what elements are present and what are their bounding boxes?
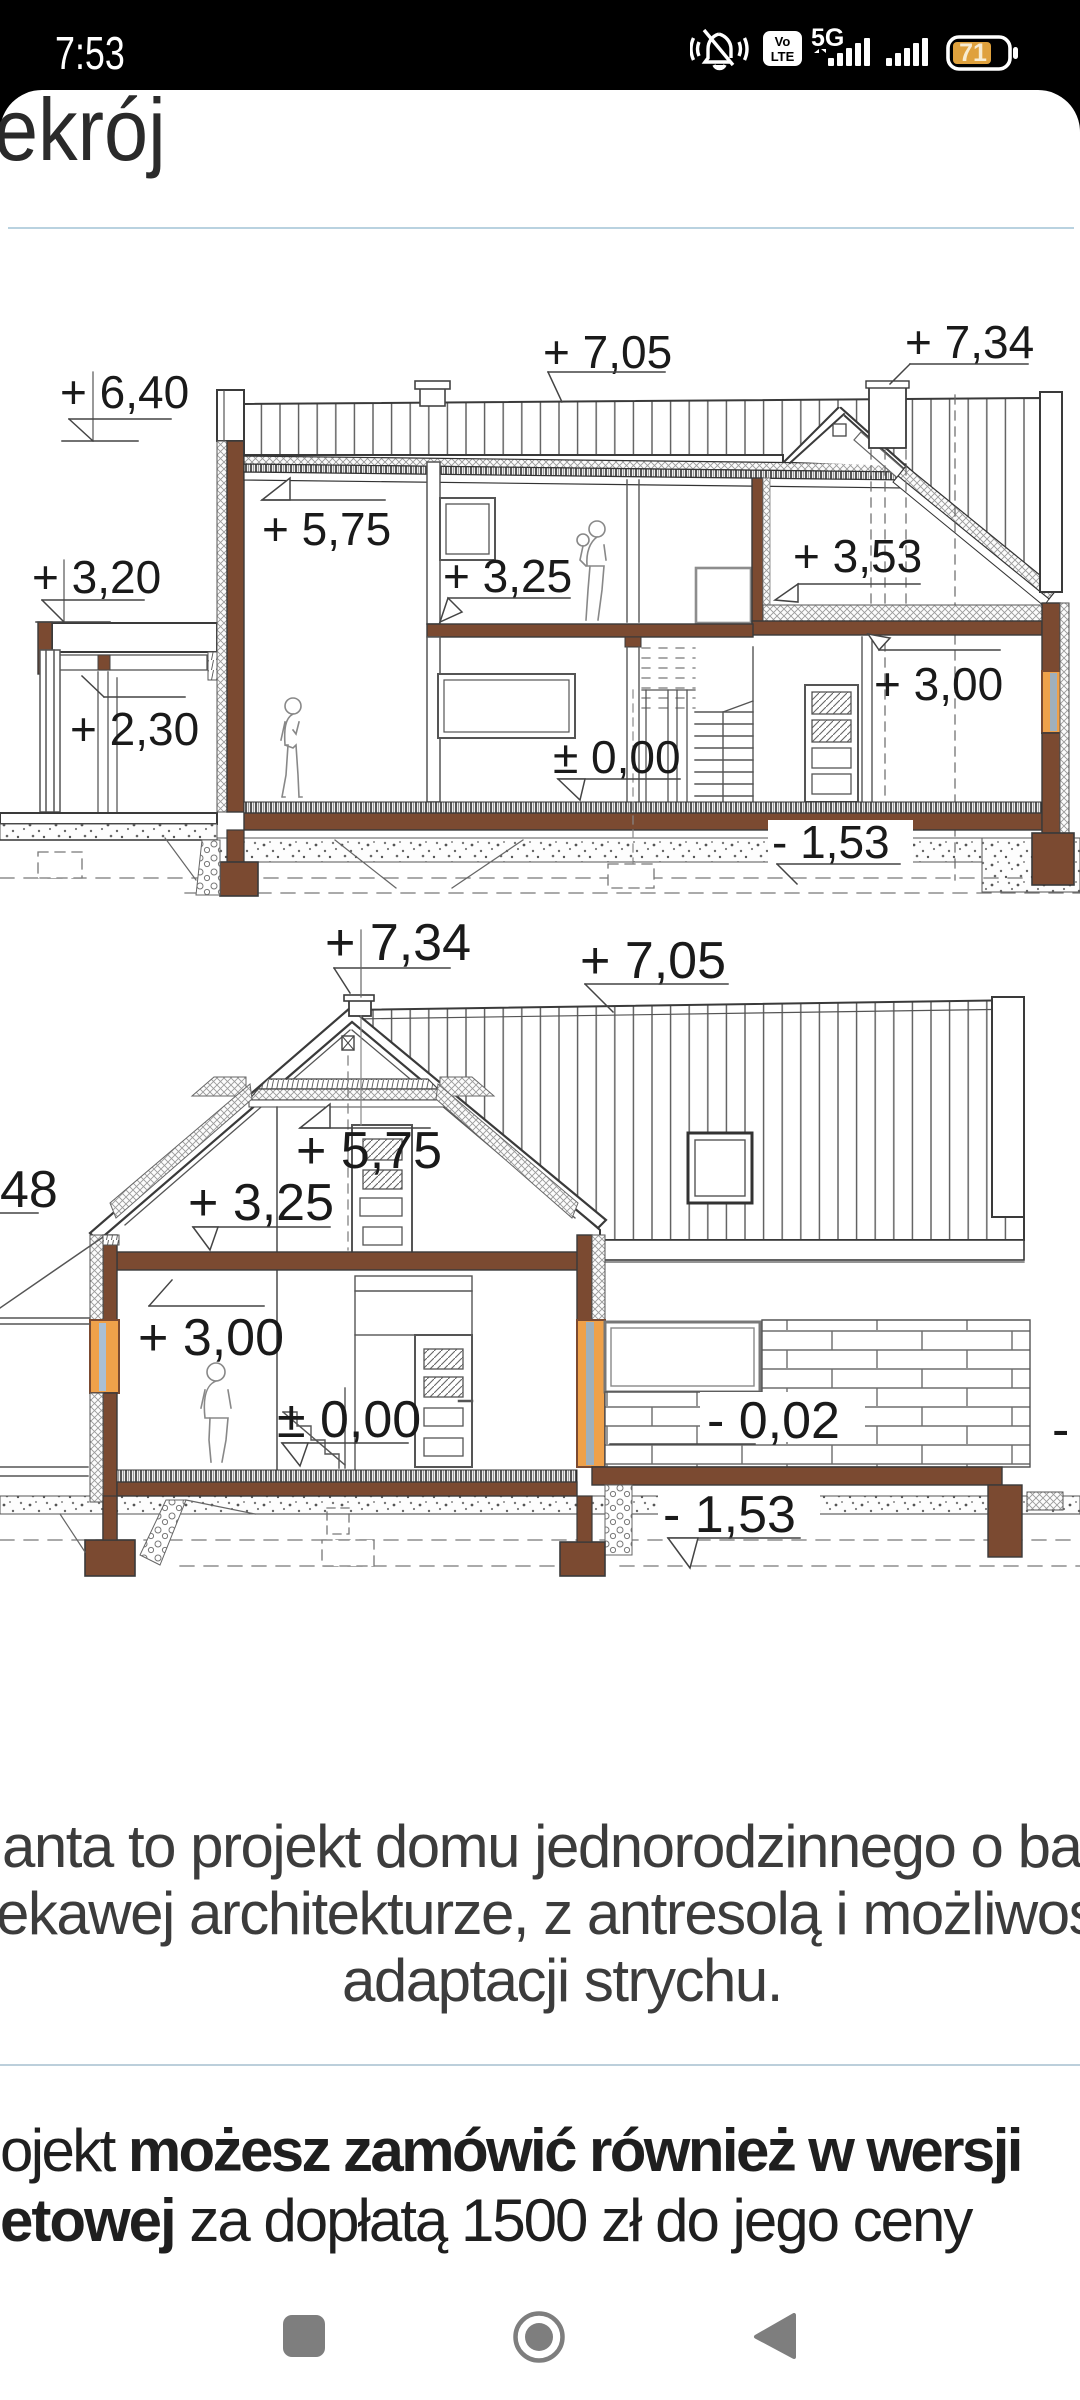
svg-text:+ 6,40: + 6,40: [60, 366, 189, 418]
svg-text:+ 3,20: + 3,20: [32, 551, 161, 603]
svg-text:+ 3,25: + 3,25: [443, 550, 572, 602]
svg-text:+ 3,00: + 3,00: [874, 658, 1003, 710]
svg-text:+ 3,00: + 3,00: [138, 1309, 284, 1367]
svg-text:+ 2,30: + 2,30: [70, 703, 199, 755]
svg-text:LTE: LTE: [771, 49, 795, 64]
svg-text:Vo: Vo: [775, 34, 791, 49]
svg-text:-: -: [1052, 1401, 1069, 1459]
svg-text:+ 5,75: + 5,75: [296, 1122, 442, 1180]
svg-text:- 1,53: - 1,53: [663, 1486, 796, 1544]
svg-text:+ 5,75: + 5,75: [262, 503, 391, 555]
svg-text:+ 3,25: + 3,25: [188, 1174, 334, 1232]
svg-text:- 0,02: - 0,02: [707, 1392, 840, 1450]
svg-text:+ 7,05: + 7,05: [543, 326, 672, 378]
svg-text:+ 3,53: + 3,53: [793, 530, 922, 582]
svg-text:71: 71: [959, 39, 987, 67]
svg-text:± 0,00: ± 0,00: [277, 1391, 421, 1449]
svg-text:± 0,00: ± 0,00: [553, 731, 681, 783]
svg-text:5G: 5G: [811, 24, 844, 52]
svg-text:- 1,53: - 1,53: [772, 816, 890, 868]
svg-text:+ 7,05: + 7,05: [580, 932, 726, 990]
svg-text:+ 7,34: + 7,34: [325, 914, 471, 972]
svg-text:48: 48: [0, 1161, 58, 1219]
svg-text:+ 7,34: + 7,34: [905, 316, 1034, 368]
